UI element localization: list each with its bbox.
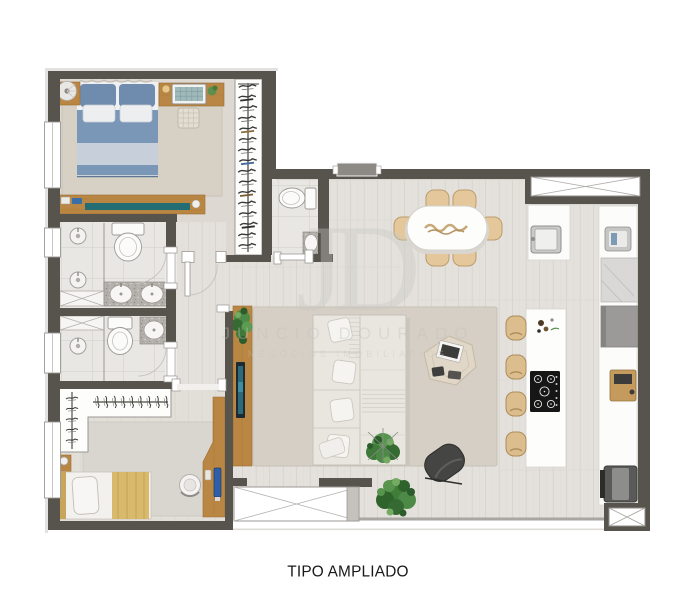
svg-text:JD: JD <box>296 200 416 337</box>
svg-text:TIPO AMPLIADO: TIPO AMPLIADO <box>287 564 408 581</box>
svg-text:JUNCIO DOURADO: JUNCIO DOURADO <box>222 324 475 343</box>
svg-text:NEGOCIOS IMOBILIARIOS: NEGOCIOS IMOBILIARIOS <box>248 349 448 359</box>
